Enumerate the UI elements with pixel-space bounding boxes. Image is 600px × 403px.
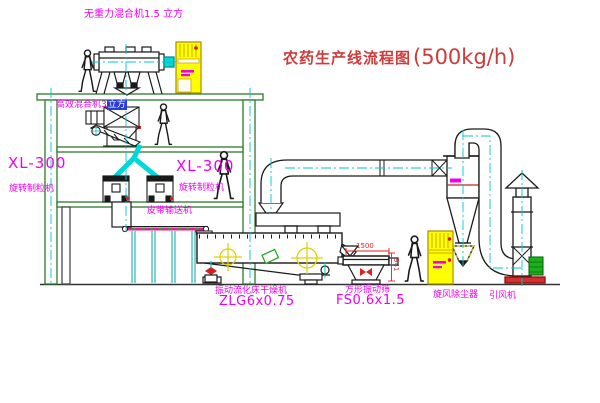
indicator-light xyxy=(194,46,198,50)
fluid-bed-dryer xyxy=(197,203,356,284)
title-capacity: (500kg/h) xyxy=(413,45,515,69)
square-vibrating-screen xyxy=(338,246,398,284)
person-figure-1 xyxy=(79,50,96,91)
granulator-right xyxy=(147,176,173,202)
person-figure-2 xyxy=(155,104,171,144)
exhaust-duct xyxy=(261,160,448,203)
belt-conveyor xyxy=(122,226,208,283)
label-dryer-model: ZLG6x0.75 xyxy=(219,295,295,310)
label-screen-model: FS0.6x1.5 xyxy=(336,294,405,309)
cyclone-dim-mark xyxy=(450,179,461,183)
dim-screen-height: 941 xyxy=(392,258,399,271)
label-granulator-center-name: 旋转制粒机 xyxy=(179,183,224,193)
label-fan: 引风机 xyxy=(489,291,516,301)
fan-base xyxy=(505,277,545,283)
label-high-efficiency-mixer-text: 高效混合机3 xyxy=(56,100,107,110)
label-granulator-center-model: XL-300 xyxy=(176,158,234,175)
label-gravity-mixer: 无重力混合机1.5 立方 xyxy=(84,9,183,21)
control-cabinet-1 xyxy=(176,42,201,93)
control-cabinet-2 xyxy=(428,231,453,284)
label-cyclone: 旋风除尘器 xyxy=(433,290,478,300)
title-text: 农药生产线流程图 xyxy=(283,47,411,68)
cad-drawing-canvas: 农药生产线流程图 (500kg/h) 无重力混合机1.5 立方 高效混合机3立方… xyxy=(0,0,600,403)
label-high-efficiency-mixer-suffix: 立方 xyxy=(107,100,127,110)
drawing-title: 农药生产线流程图 (500kg/h) xyxy=(283,45,515,69)
cabinet-text-mark xyxy=(433,261,446,264)
discharge-valve xyxy=(205,267,217,275)
drop-duct xyxy=(112,202,131,227)
gravity-mixer xyxy=(94,47,174,95)
cabinet-text-mark xyxy=(181,70,194,73)
label-high-efficiency-mixer: 高效混合机3立方 xyxy=(56,100,127,110)
label-granulator-left-model: XL-300 xyxy=(8,155,66,172)
person-figure-4 xyxy=(405,236,423,281)
indicator-light xyxy=(448,237,451,240)
label-belt-conveyor: 皮带输送机 xyxy=(147,206,192,216)
dim-screen-width: 1500 xyxy=(356,243,374,250)
label-granulator-left-name: 旋转制粒机 xyxy=(9,184,54,194)
granulator-left xyxy=(103,176,129,202)
fan-motor xyxy=(529,257,543,275)
